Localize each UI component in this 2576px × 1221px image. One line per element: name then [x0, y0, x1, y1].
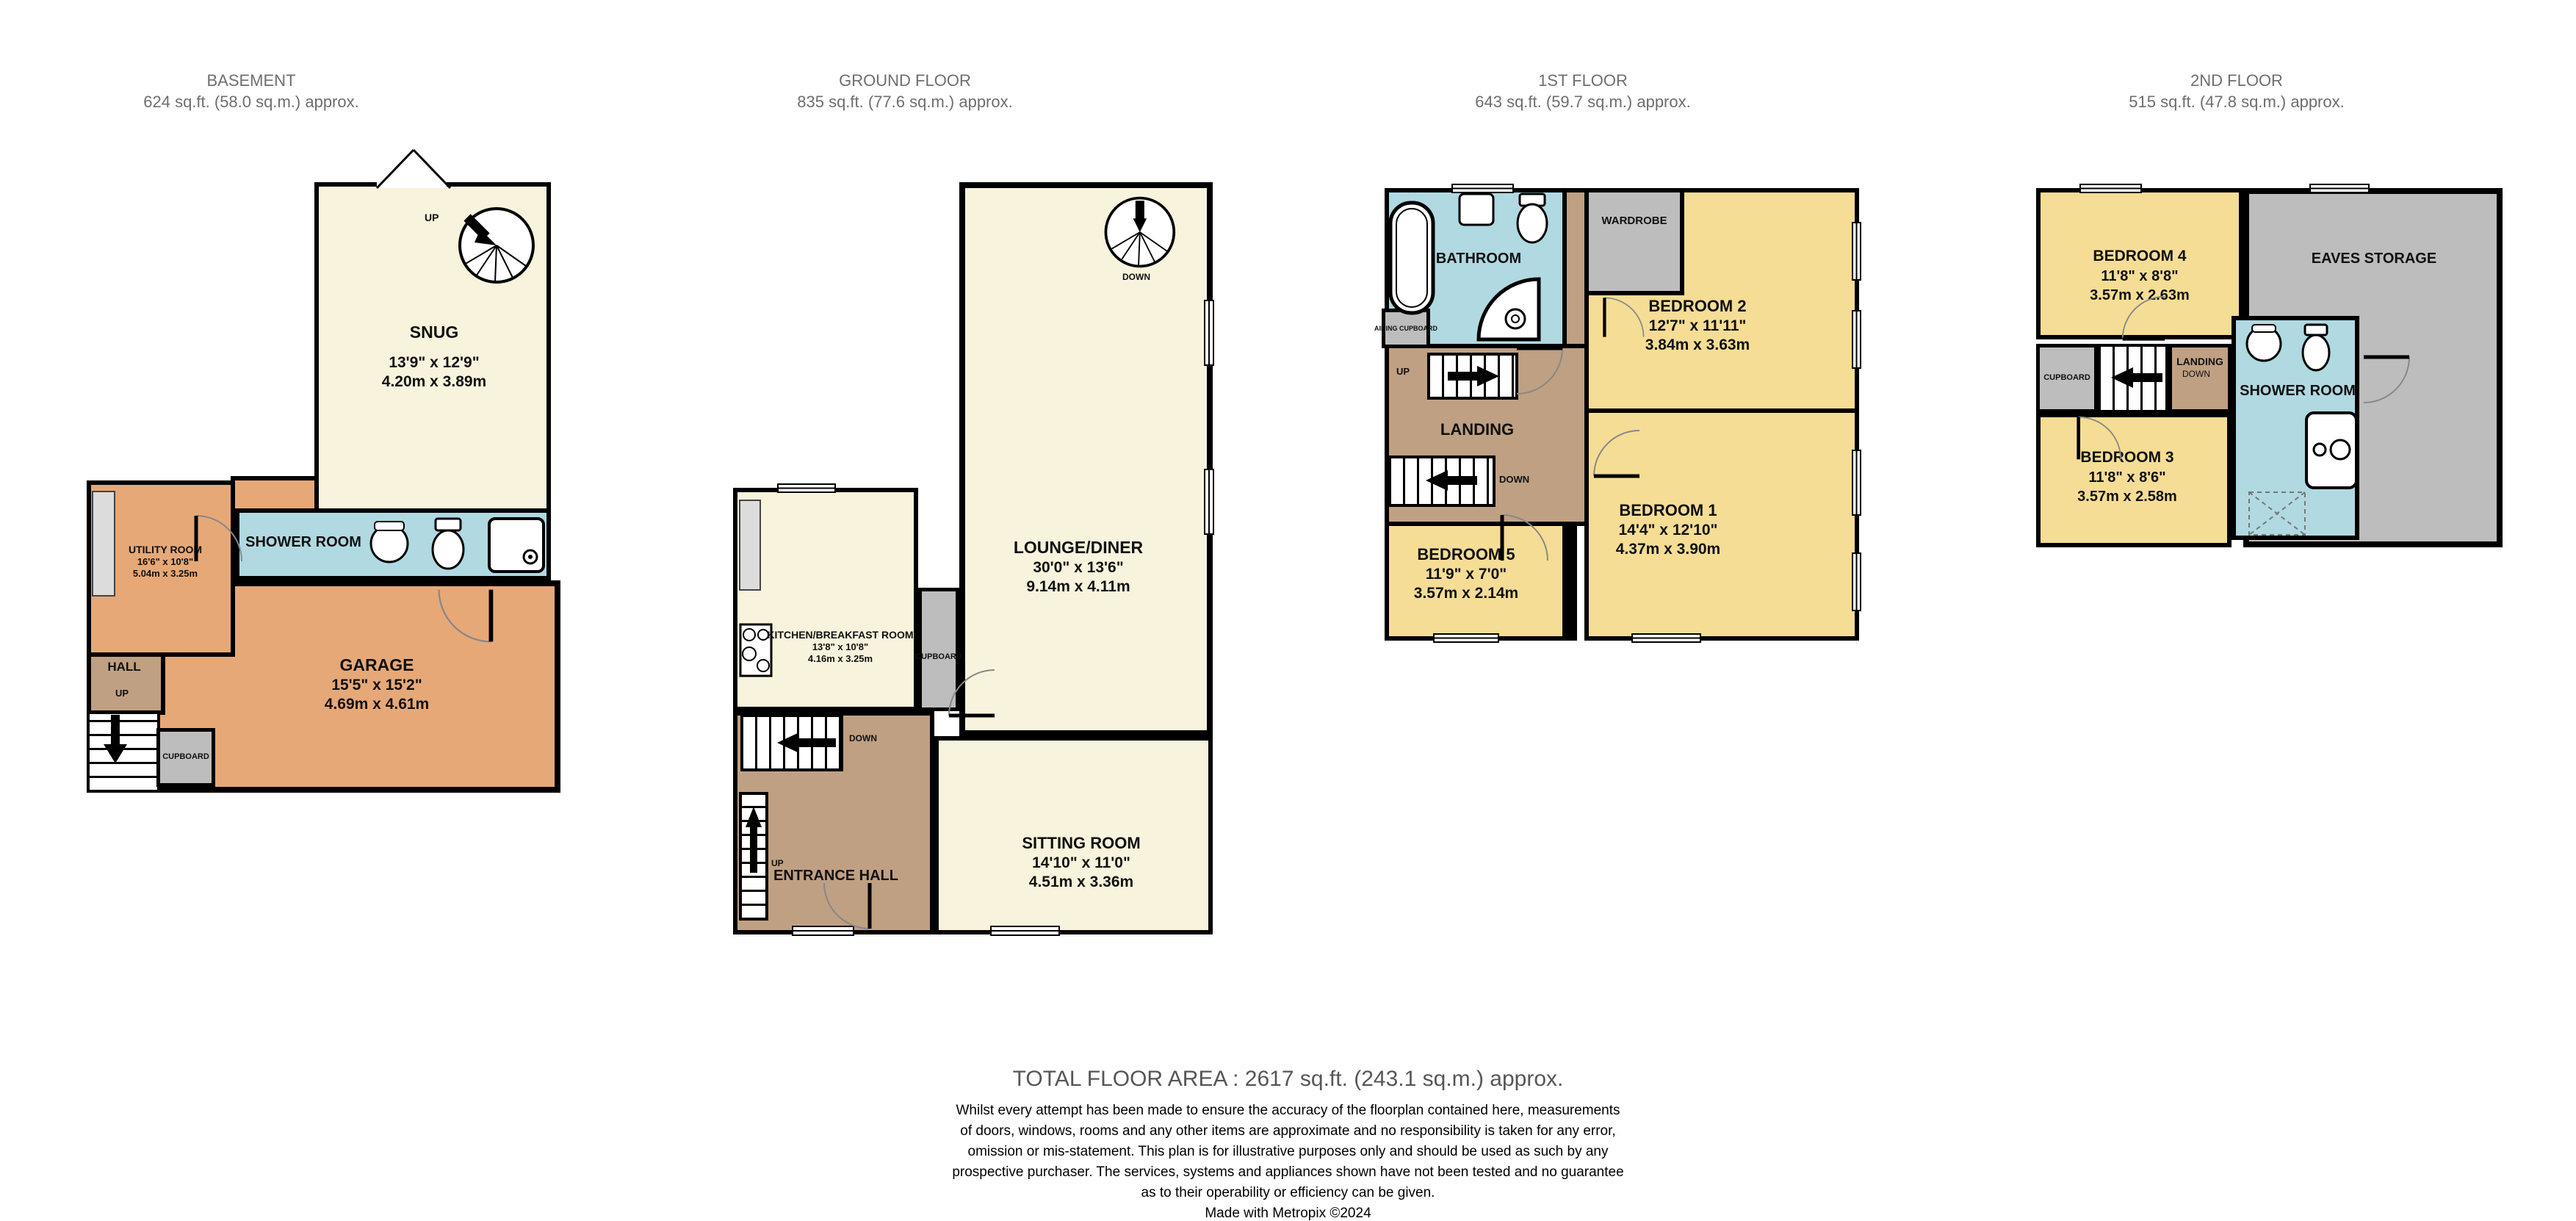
lounge-door — [946, 667, 997, 718]
eaves-label: EAVES STORAGE — [2312, 250, 2436, 267]
snug-label: SNUG 13'9" x 12'9" 4.20m x 3.89m — [382, 322, 486, 392]
second-landing-label: LANDING — [2176, 356, 2223, 367]
bedroom5-door — [1499, 512, 1551, 563]
airing-cupboard-label: AIRING CUPBOARD — [1374, 325, 1437, 332]
bed1-window-1 — [1852, 450, 1861, 516]
kitchen-worktop — [739, 500, 761, 591]
second-plan: BEDROOM 4 11'8" x 8'8" 3.57m x 2.63m EAV… — [2032, 185, 2505, 552]
lounge-label: LOUNGE/DINER 30'0" x 13'6" 9.14m x 4.11m — [1014, 537, 1143, 597]
garage-label: GARAGE 15'5" x 15'2" 4.69m x 4.61m — [325, 655, 429, 714]
disclaimer: Whilst every attempt has been made to en… — [0, 1101, 2576, 1221]
snug-double-door — [373, 147, 454, 190]
first-up-arrow — [1448, 366, 1499, 386]
bed5-bed1-wall — [1567, 522, 1577, 641]
first-header: 1ST FLOOR 643 sq.ft. (59.7 sq.m.) approx… — [1348, 70, 1818, 112]
ground-title: GROUND FLOOR — [839, 71, 971, 90]
bed5-window — [1433, 633, 1499, 643]
eaves-window — [2309, 184, 2370, 193]
ground-down-arrow — [777, 732, 836, 754]
kitchen-window — [777, 483, 836, 493]
first-up-label: UP — [1396, 366, 1410, 377]
bathroom-fixtures — [1389, 192, 1562, 344]
front-door — [821, 880, 873, 932]
disclaimer-line-2: of doors, windows, rooms and any other i… — [960, 1123, 1615, 1139]
basement-title: BASEMENT — [206, 71, 295, 90]
shower-door — [193, 513, 245, 564]
ground-header: GROUND FLOOR 835 sq.ft. (77.6 sq.m.) app… — [670, 70, 1140, 112]
basement-shower-label: SHOWER ROOM — [245, 533, 361, 551]
entrance-down-label: DOWN — [849, 733, 877, 743]
utility-appliances — [92, 491, 115, 597]
ground-spiral-stairs-icon — [1100, 194, 1177, 270]
second-header: 2ND FLOOR 515 sq.ft. (47.8 sq.m.) approx… — [2002, 70, 2472, 112]
bed2-window-1 — [1852, 222, 1861, 281]
basement-plan: UP SNUG 13'9" x 12'9" 4.20m x 3.89m SHOW… — [83, 145, 568, 799]
first-title: 1ST FLOOR — [1538, 71, 1628, 90]
basement-shower-fixtures — [366, 514, 549, 576]
basement-header: BASEMENT 624 sq.ft. (58.0 sq.m.) approx. — [16, 70, 486, 112]
second-area: 515 sq.ft. (47.8 sq.m.) approx. — [2129, 93, 2344, 111]
bedroom3-door — [2076, 414, 2124, 462]
spiral-stairs-icon — [454, 204, 536, 287]
bed1-window-2 — [1852, 552, 1861, 611]
second-shower-label: SHOWER ROOM — [2240, 382, 2356, 400]
metropix-credit: Made with Metropix ©2024 — [1205, 1206, 1371, 1221]
hall-up-label: UP — [115, 688, 129, 699]
bed1-window-3 — [1631, 633, 1701, 643]
first-down-arrow — [1426, 470, 1477, 491]
disclaimer-line-5: as to their operability or efficiency ca… — [1141, 1185, 1435, 1200]
second-down-arrow — [2111, 367, 2162, 388]
disclaimer-line-4: prospective purchaser. The services, sys… — [952, 1164, 1623, 1180]
disclaimer-line-3: omission or mis-statement. This plan is … — [968, 1144, 1609, 1159]
sitting-label: SITTING ROOM 14'10" x 11'0" 4.51m x 3.36… — [1022, 832, 1140, 892]
lounge-down-label: DOWN — [1122, 272, 1150, 282]
floorplan-canvas: BASEMENT 624 sq.ft. (58.0 sq.m.) approx.… — [0, 0, 2576, 1221]
basement-stairs-down-arrow — [99, 715, 131, 766]
first-plan: UP DOWN BATHROOM AIRING CUPBOARD WARDROB… — [1382, 185, 1863, 644]
ground-up-arrow — [745, 807, 762, 873]
kitchen-label: KITCHEN/BREAKFAST ROOM 13'8" x 10'8" 4.1… — [767, 629, 913, 665]
hall-label: HALL — [107, 660, 140, 674]
wardrobe-door — [1602, 295, 1646, 339]
utility-label: UTILITY ROOM 16'6" x 10'8" 5.04m x 3.25m — [129, 544, 202, 580]
bathroom-door — [1514, 345, 1565, 397]
total-floor-area: TOTAL FLOOR AREA : 2617 sq.ft. (243.1 sq… — [0, 1067, 2576, 1092]
bathroom-label: BATHROOM — [1436, 250, 1521, 267]
bedroom1-label: BEDROOM 1 14'4" x 12'10" 4.37m x 3.90m — [1616, 500, 1720, 559]
second-landing-down-label: DOWN — [2182, 369, 2210, 379]
first-down-label: DOWN — [1499, 474, 1529, 485]
bathroom-window — [1451, 184, 1514, 193]
ground-cupboard-label: CUPBOARD — [915, 652, 962, 661]
wardrobe-label: WARDROBE — [1601, 215, 1667, 227]
bed4-window — [2079, 184, 2142, 193]
basement-cupboard-label: CUPBOARD — [162, 752, 209, 761]
garage-door — [436, 586, 494, 645]
wardrobe-room — [1584, 188, 1684, 295]
first-landing-label: LANDING — [1440, 419, 1514, 440]
ground-plan: DOWN DOWN UP LOUNGE/DINER 30'0" x 13'6" … — [733, 182, 1218, 939]
bedroom1-door — [1591, 428, 1642, 479]
second-shower-door — [2361, 354, 2412, 406]
basement-up-label: UP — [425, 212, 439, 223]
lounge-window-1 — [1204, 300, 1214, 366]
lounge-window-2 — [1204, 469, 1214, 535]
second-cupboard-label: CUPBOARD — [2043, 373, 2090, 382]
bedroom2-label: BEDROOM 2 12'7" x 11'11" 3.84m x 3.63m — [1645, 295, 1750, 355]
basement-area: 624 sq.ft. (58.0 sq.m.) approx. — [143, 93, 358, 111]
bed2-window-2 — [1852, 310, 1861, 369]
second-title: 2ND FLOOR — [2190, 71, 2283, 90]
disclaimer-line-1: Whilst every attempt has been made to en… — [956, 1103, 1620, 1118]
first-area: 643 sq.ft. (59.7 sq.m.) approx. — [1475, 93, 1690, 111]
bedroom4-door — [2120, 294, 2168, 342]
ground-area: 835 sq.ft. (77.6 sq.m.) approx. — [797, 93, 1012, 111]
sitting-window — [990, 926, 1060, 936]
second-shower-fixtures — [2237, 323, 2359, 538]
